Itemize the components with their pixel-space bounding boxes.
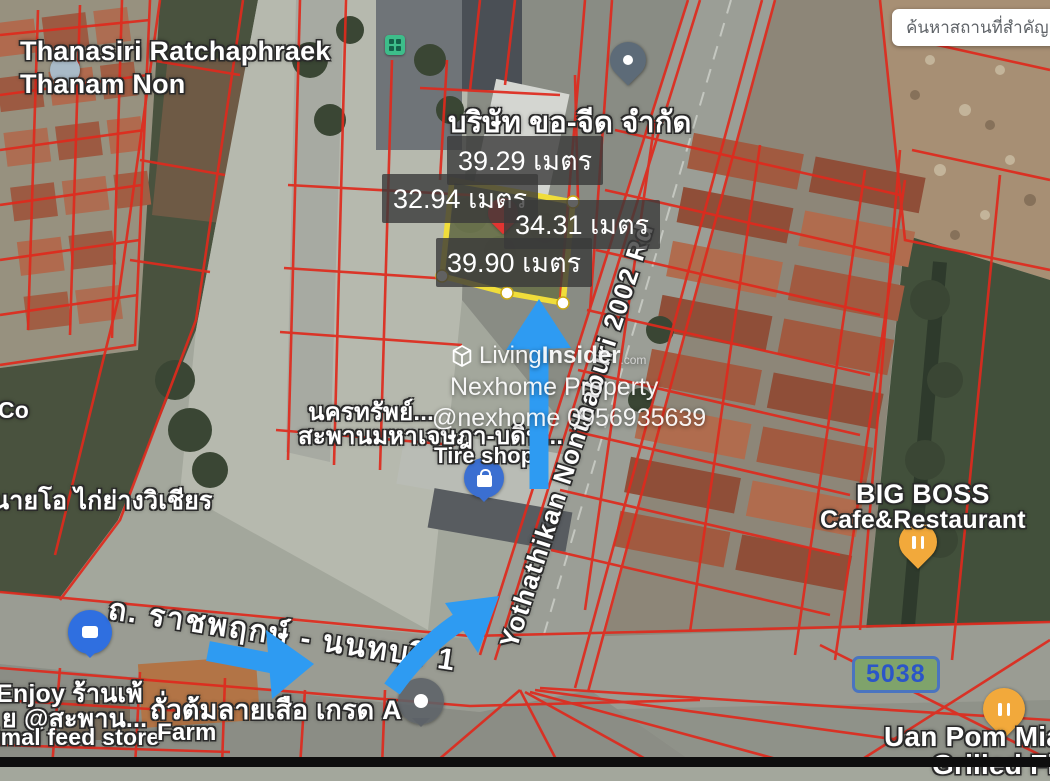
watermark-brand-insider: Insider xyxy=(542,342,621,370)
cube-logo-icon xyxy=(452,345,472,367)
bottom-letterbox-bar xyxy=(0,757,1050,767)
watermark-brand-living: Living xyxy=(479,342,542,370)
watermark-brand-tld: .com xyxy=(620,353,646,367)
watermark-contact: @nexhome 0956935639 xyxy=(432,404,706,433)
search-input[interactable]: ค้นหาสถานที่สำคัญ xyxy=(892,9,1050,46)
watermark: LivingInsider.com Nexhome Property @nexh… xyxy=(432,342,706,433)
watermark-agency: Nexhome Property xyxy=(450,373,706,402)
